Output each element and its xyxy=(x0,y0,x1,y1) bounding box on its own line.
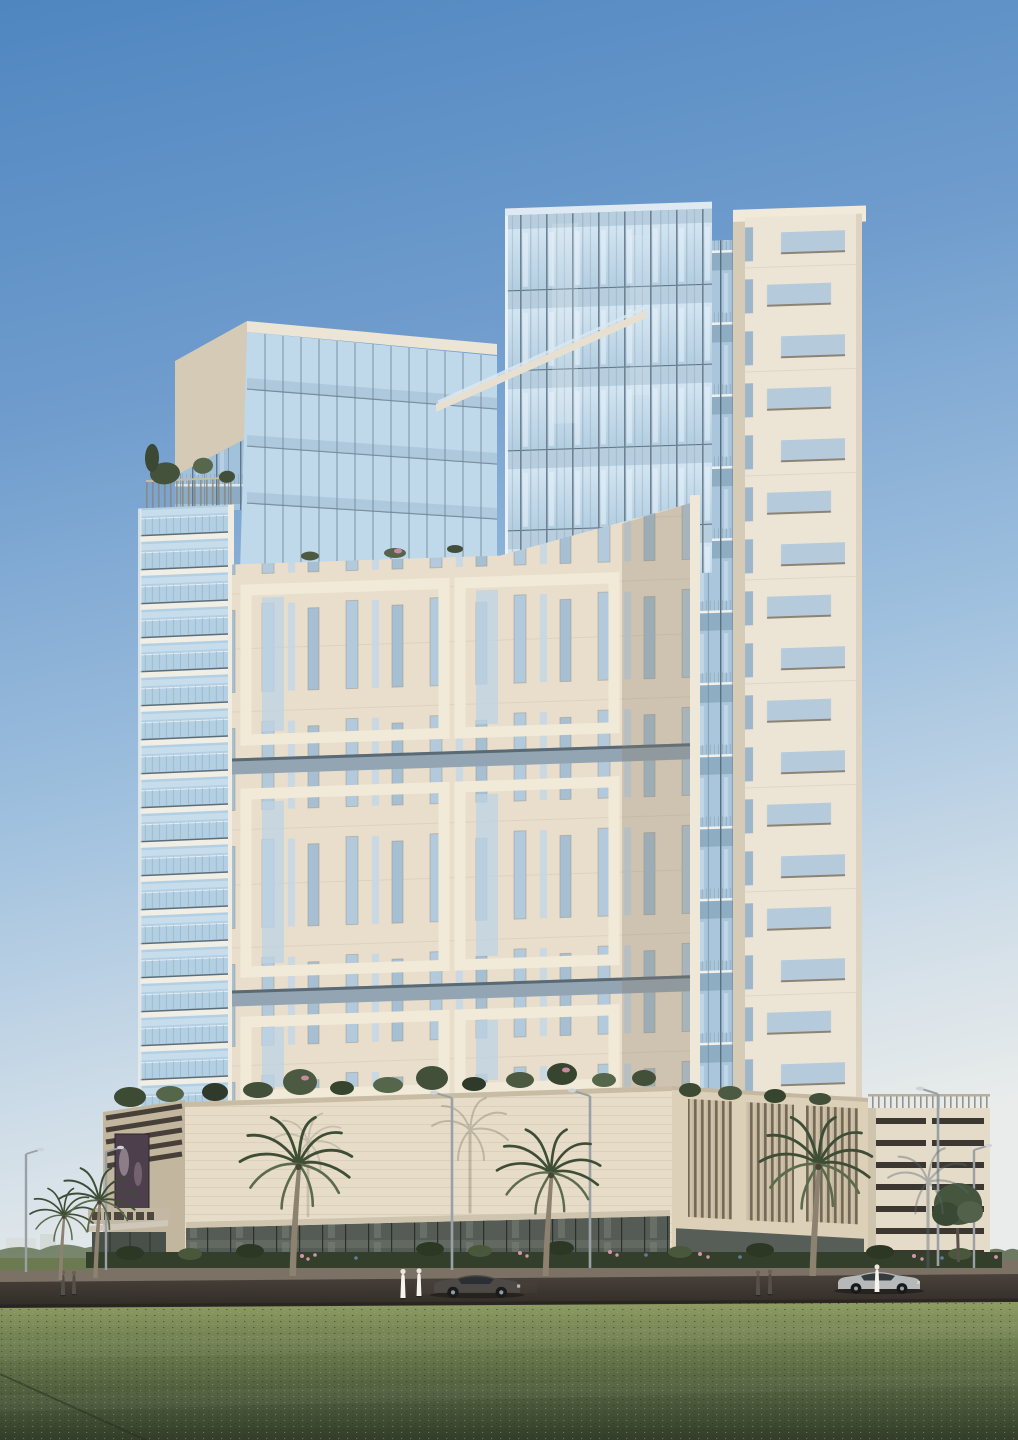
podium-right-face xyxy=(672,1086,868,1269)
balcony-stack xyxy=(138,504,234,1116)
stone-flank-tower xyxy=(733,205,866,1101)
architectural-rendering: 125 years of innovation Mercedes-Benz Th… xyxy=(0,0,1018,1440)
main-facade xyxy=(232,495,700,1111)
rendering-canvas: 125 years of innovation Mercedes-Benz Th… xyxy=(0,0,1018,1440)
podium xyxy=(88,1086,868,1270)
fashion-banner xyxy=(115,1134,149,1210)
